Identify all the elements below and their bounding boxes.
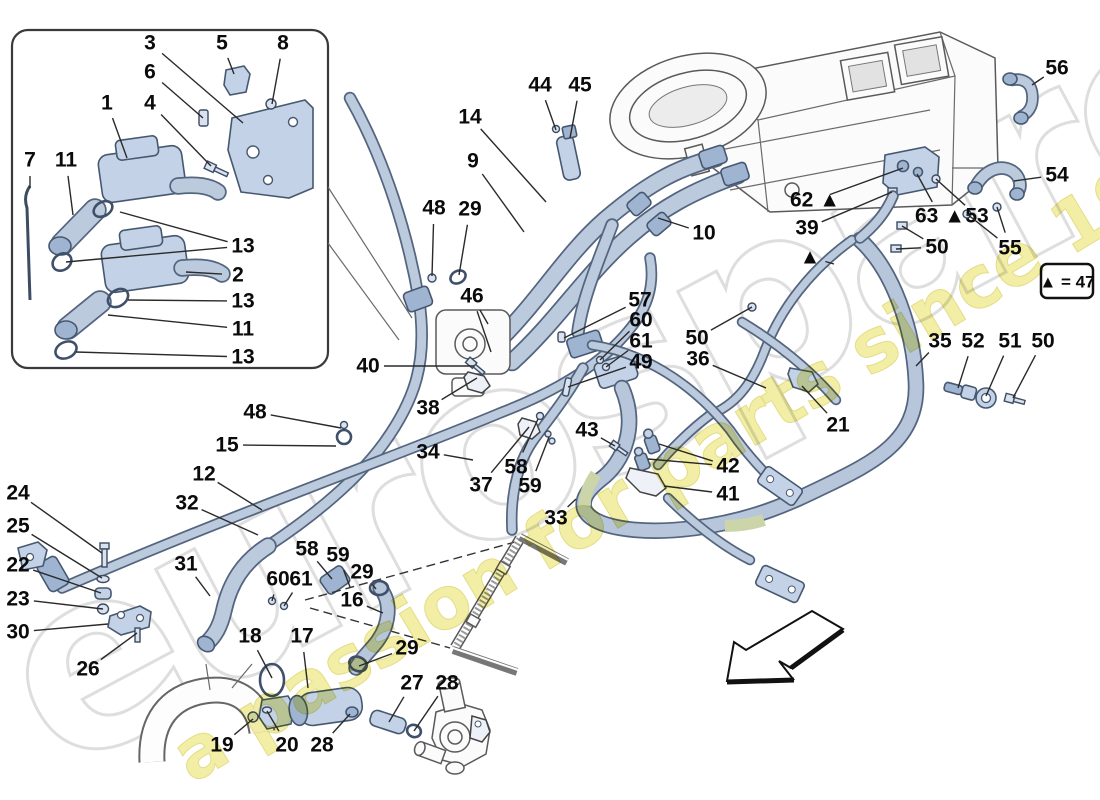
callout-▲: ▲ xyxy=(800,246,821,269)
callout-28: 28 xyxy=(435,672,459,695)
nut-8 xyxy=(266,99,276,109)
leader-line-29 xyxy=(459,225,467,275)
callout-25: 25 xyxy=(6,515,30,538)
callout-63 ▲: 63 ▲ xyxy=(915,205,965,228)
callout-44: 44 xyxy=(528,74,552,97)
clamp-29 xyxy=(448,268,468,286)
callout-59: 59 xyxy=(326,544,349,567)
grommet-22 xyxy=(95,588,111,599)
callout-15: 15 xyxy=(215,434,239,457)
callout-40: 40 xyxy=(356,355,379,378)
oring-59 xyxy=(549,438,555,444)
callout-48: 48 xyxy=(422,197,446,220)
diagram-canvas: eurospares xyxy=(0,0,1100,800)
leader-line-13 xyxy=(128,300,227,301)
callout-2: 2 xyxy=(232,264,244,287)
sensor-bracket-45 xyxy=(553,125,582,182)
direction-arrow xyxy=(727,611,843,682)
callout-58: 58 xyxy=(295,538,319,561)
leader-line-14 xyxy=(481,129,546,202)
callout-23: 23 xyxy=(6,588,29,611)
callout-39: 39 xyxy=(795,217,818,240)
leader-line-15 xyxy=(243,445,336,446)
leader-line-44 xyxy=(545,100,556,130)
callout-14: 14 xyxy=(458,106,482,129)
hose-sleeve xyxy=(725,520,764,526)
screw-26 xyxy=(135,628,140,642)
leader-line-9 xyxy=(482,174,524,232)
callout-45: 45 xyxy=(568,74,592,97)
callout-12: 12 xyxy=(192,463,215,486)
callout-5: 5 xyxy=(216,32,228,55)
callout-9: 9 xyxy=(467,150,479,173)
callout-29: 29 xyxy=(350,561,373,584)
callout-11: 11 xyxy=(55,149,78,172)
callout-62 ▲: 62 ▲ xyxy=(790,189,840,212)
callout-26: 26 xyxy=(76,658,99,681)
callout-29: 29 xyxy=(458,198,481,221)
callout-13: 13 xyxy=(231,235,254,258)
callout-18: 18 xyxy=(238,625,262,648)
bolt-48 xyxy=(341,422,348,429)
callout-31: 31 xyxy=(174,553,198,576)
callout-6: 6 xyxy=(144,61,156,84)
callout-51: 51 xyxy=(998,330,1022,353)
callout-49: 49 xyxy=(629,351,652,374)
parts-diagram-page: eurospares xyxy=(0,0,1100,800)
callout-38: 38 xyxy=(416,397,440,420)
callout-28: 28 xyxy=(310,734,334,757)
bolt-24 xyxy=(100,543,109,549)
callout-61: 61 xyxy=(289,568,313,591)
sleeve-27 xyxy=(368,709,407,735)
callout-56: 56 xyxy=(1045,57,1068,80)
callout-36: 36 xyxy=(686,348,709,371)
leader-line-48 xyxy=(432,224,434,276)
leader-line-51 xyxy=(986,356,1004,396)
callout-60: 60 xyxy=(266,568,289,591)
callout-60: 60 xyxy=(629,309,652,332)
callout-43: 43 xyxy=(575,419,598,442)
callout-4: 4 xyxy=(144,92,156,115)
callout-22: 22 xyxy=(6,554,29,577)
bolt-58 xyxy=(537,413,544,420)
callout-13: 13 xyxy=(231,346,254,369)
callout-3: 3 xyxy=(144,32,156,55)
oring-59 xyxy=(545,431,551,437)
callout-50: 50 xyxy=(1031,330,1054,353)
callout-32: 32 xyxy=(175,492,198,515)
callout-1: 1 xyxy=(101,92,113,115)
callout-61: 61 xyxy=(629,330,653,353)
callout-46: 46 xyxy=(460,285,483,308)
callout-24: 24 xyxy=(6,482,30,505)
callout-34: 34 xyxy=(416,441,440,464)
callout-50: 50 xyxy=(685,327,708,350)
callout-59: 59 xyxy=(518,475,541,498)
callout-11: 11 xyxy=(232,318,255,341)
callout-8: 8 xyxy=(277,32,289,55)
callout-30: 30 xyxy=(6,621,29,644)
callout-48: 48 xyxy=(243,401,267,424)
callout-13: 13 xyxy=(231,290,254,313)
grommet-parts xyxy=(943,380,1026,408)
callout-37: 37 xyxy=(469,474,492,497)
screw-6 xyxy=(199,110,208,126)
bracket-clip xyxy=(224,66,250,95)
callout-7: 7 xyxy=(24,149,36,172)
bolt-24 xyxy=(102,549,107,567)
bolt-57 xyxy=(558,332,565,342)
callout-10: 10 xyxy=(692,222,715,245)
leader-line-50 xyxy=(1013,355,1036,398)
